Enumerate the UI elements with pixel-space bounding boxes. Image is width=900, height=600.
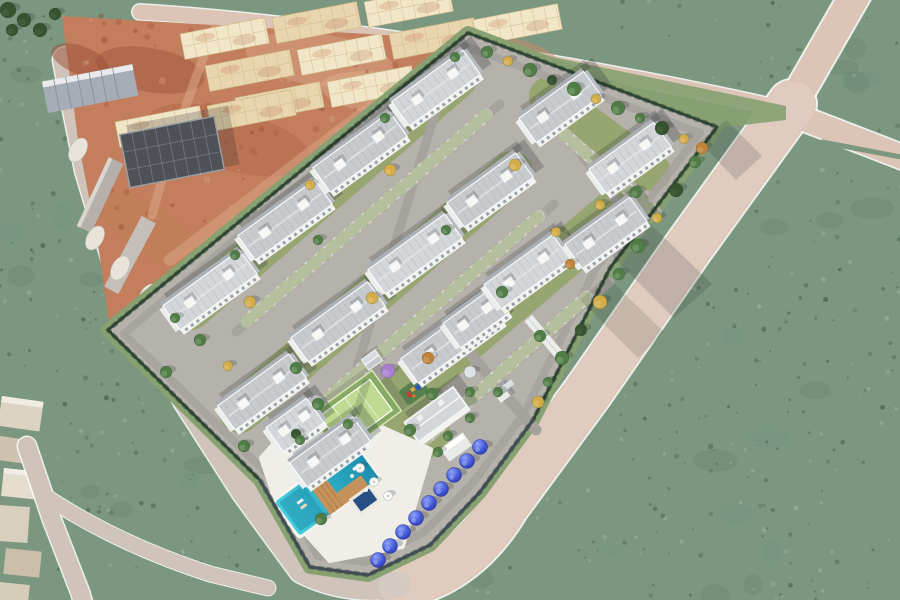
aerial-render-image bbox=[0, 0, 900, 600]
scene-canvas bbox=[0, 0, 900, 600]
